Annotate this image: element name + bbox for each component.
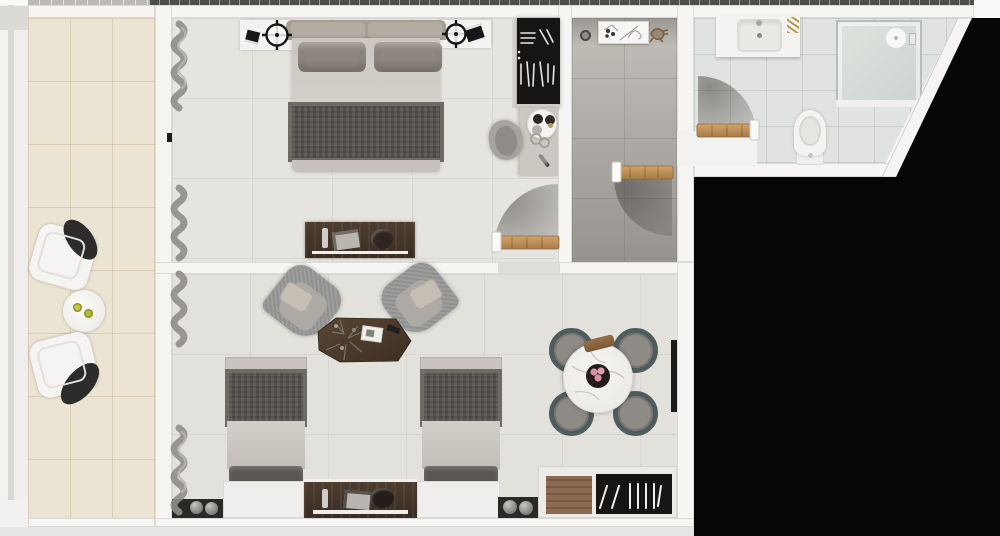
headboard-cushion-left <box>291 22 365 38</box>
window-mullion-mark <box>167 133 172 142</box>
twin-bed-right <box>420 357 502 485</box>
decor-sphere <box>205 502 218 515</box>
shower-head-center <box>894 36 898 40</box>
twin-bed-duvet <box>422 421 500 469</box>
bathroom-vestibule <box>677 131 757 166</box>
toilet-flush-button <box>808 153 813 158</box>
headboard-panel-right <box>417 481 500 518</box>
living-bottom-wall <box>155 518 694 527</box>
decor-sphere <box>503 500 517 514</box>
bedroom-console-remote <box>322 228 328 248</box>
balcony-left-wall <box>0 5 28 536</box>
decor-sphere <box>190 501 203 514</box>
floorplan-render <box>0 0 1000 536</box>
hallway-floor <box>572 18 677 262</box>
shower-sill <box>836 100 922 107</box>
twin-bed-left <box>225 357 307 485</box>
bedroom-console-soundbar <box>312 251 408 254</box>
bedroom-console-bowl <box>371 229 393 249</box>
dining-table <box>563 343 633 413</box>
living-console-bowl <box>370 488 394 508</box>
drink-2 <box>84 309 93 318</box>
bedroom-console-magazine <box>332 229 360 250</box>
wall-panel-dark <box>671 340 677 412</box>
bedroom-living-wall-left <box>155 262 499 274</box>
wardrobe-open <box>517 18 560 108</box>
balcony-corner-block-top <box>0 6 28 30</box>
tray-cup-dark-1 <box>533 114 543 124</box>
gold-accessory <box>787 17 799 33</box>
shower-handle <box>909 33 916 45</box>
basin-drain <box>757 33 762 38</box>
decor-sphere <box>519 501 533 515</box>
desk-cup-ring-2 <box>539 137 550 148</box>
tray-gold-detail <box>548 123 553 128</box>
balcony-top-wall <box>28 5 155 18</box>
toilet-seat <box>799 116 821 146</box>
bed-runner <box>292 106 440 158</box>
living-console-soundbar <box>313 510 408 514</box>
living-console-top-edge <box>304 479 417 482</box>
bed-pillow-right <box>374 42 442 72</box>
bedroom-living-wall-right <box>559 262 694 274</box>
drink-1 <box>73 303 82 312</box>
hall-wall-art <box>598 21 649 44</box>
hall-peephole-detail <box>580 30 591 41</box>
bed-pillow-left <box>298 42 366 72</box>
closet-wood-section <box>546 476 592 514</box>
living-east-wall <box>677 262 694 527</box>
twin-bed-runner <box>229 373 303 423</box>
balcony-bottom-wall <box>28 518 155 527</box>
bed-foot-band <box>292 160 440 172</box>
living-console-magazine <box>343 490 370 510</box>
bedroom-door-threshold <box>499 262 559 274</box>
twin-bed-duvet <box>227 421 305 469</box>
vanity-faucet <box>756 20 762 26</box>
headboard-cushion-right <box>368 22 442 38</box>
closet-hanger-section <box>596 474 672 514</box>
bedroom-hall-wall <box>558 5 572 274</box>
living-console-remote <box>322 489 328 508</box>
twin-bed-runner <box>424 373 498 423</box>
desk-chair-seat <box>494 125 519 157</box>
headboard-panel-left <box>223 481 304 518</box>
bottom-edge-strip <box>0 527 694 536</box>
